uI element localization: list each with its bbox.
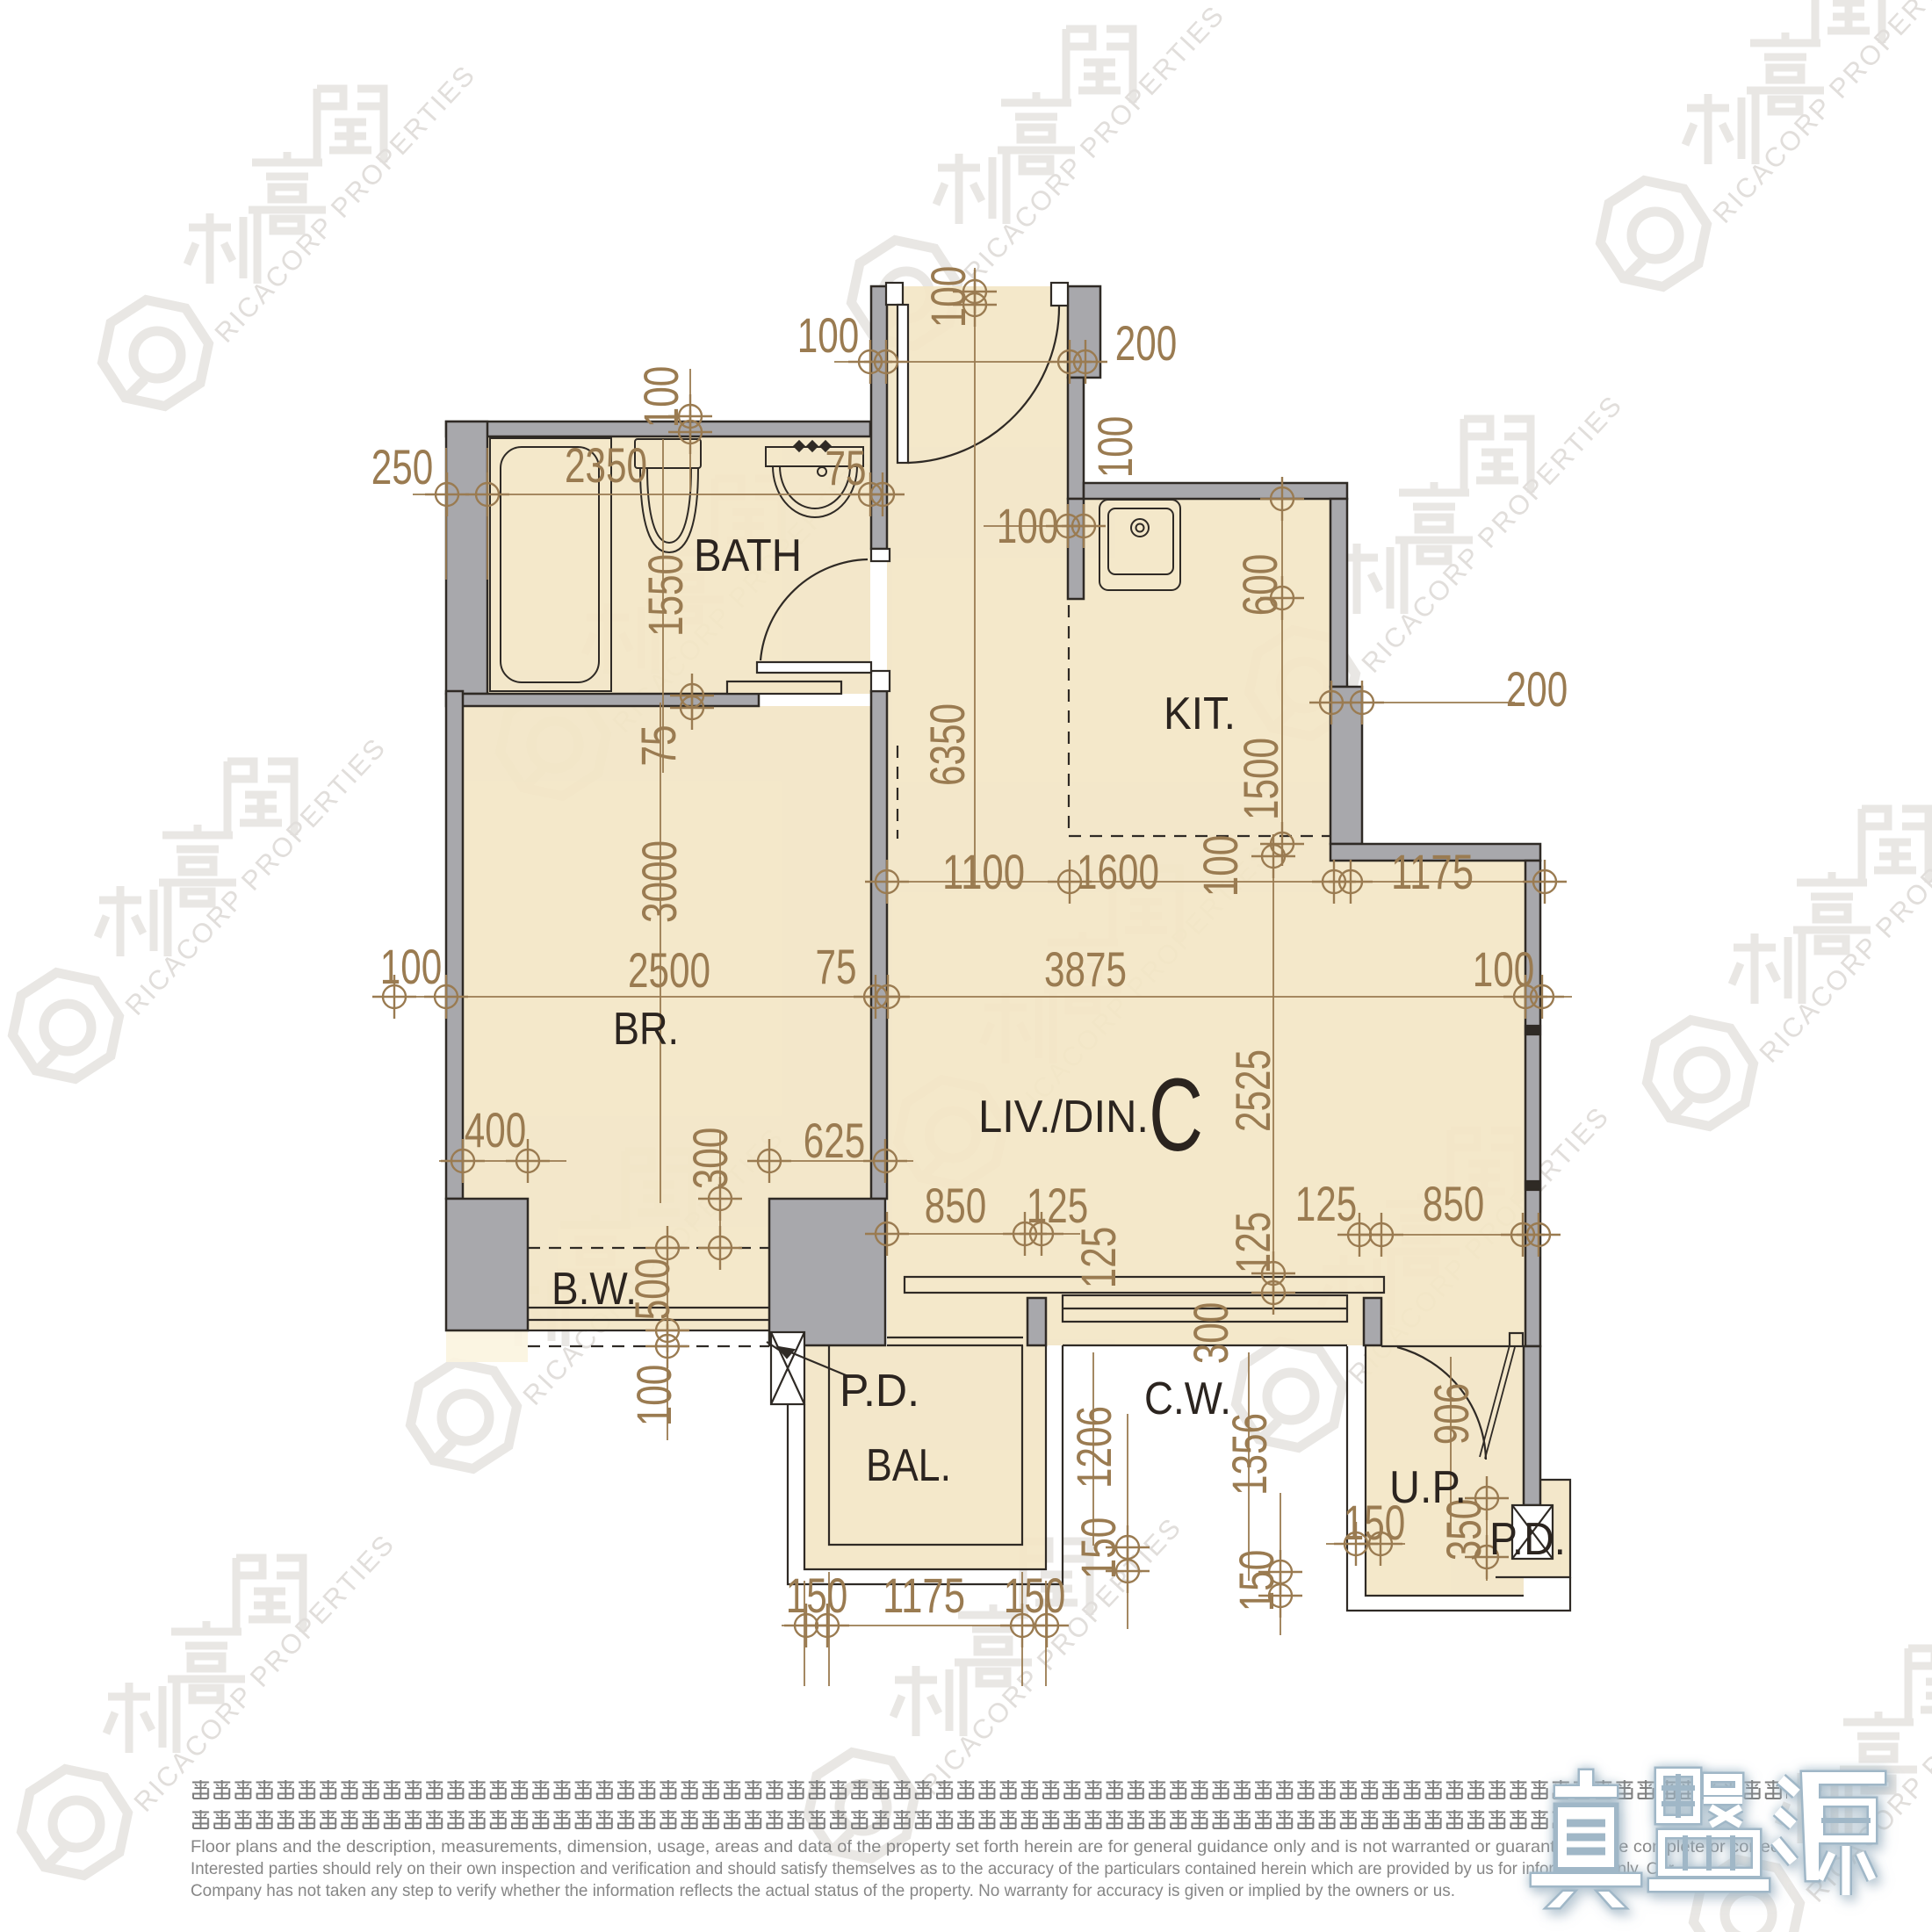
svg-text:100: 100	[633, 366, 688, 429]
svg-text:3875: 3875	[1044, 941, 1127, 997]
svg-text:2350: 2350	[565, 437, 647, 493]
svg-text:100: 100	[1193, 835, 1248, 898]
svg-text:75: 75	[816, 939, 857, 994]
svg-text:1206: 1206	[1066, 1406, 1121, 1489]
svg-text:1100: 1100	[942, 844, 1025, 899]
svg-text:625: 625	[804, 1113, 866, 1168]
svg-text:400: 400	[465, 1102, 527, 1157]
svg-text:906: 906	[1424, 1383, 1479, 1445]
svg-text:1550: 1550	[638, 554, 693, 637]
svg-text:125: 125	[1027, 1178, 1089, 1233]
svg-text:100: 100	[1473, 941, 1535, 997]
svg-text:150: 150	[1229, 1550, 1284, 1612]
svg-text:150: 150	[1004, 1568, 1066, 1623]
svg-text:Company has not taken any step: Company has not taken any step to verify…	[191, 1881, 1455, 1900]
svg-text:LIV./DIN.: LIV./DIN.	[978, 1092, 1149, 1143]
svg-text:2525: 2525	[1225, 1049, 1280, 1132]
svg-text:100: 100	[626, 1365, 681, 1427]
svg-text:300: 300	[682, 1128, 738, 1190]
svg-text:200: 200	[1506, 661, 1568, 717]
svg-text:6350: 6350	[919, 703, 975, 786]
svg-text:1600: 1600	[1077, 844, 1159, 899]
svg-text:850: 850	[1423, 1176, 1485, 1231]
svg-text:100: 100	[997, 498, 1059, 553]
svg-text:BAL.: BAL.	[866, 1440, 951, 1491]
svg-text:125: 125	[1295, 1176, 1358, 1231]
svg-text:300: 300	[1183, 1302, 1238, 1365]
svg-text:75: 75	[631, 725, 686, 767]
svg-text:1500: 1500	[1233, 738, 1288, 820]
svg-text:100: 100	[920, 266, 976, 328]
svg-text:P.D.: P.D.	[1489, 1514, 1566, 1565]
svg-text:100: 100	[1087, 416, 1143, 479]
svg-text:100: 100	[380, 939, 443, 994]
svg-text:Interested parties should rely: Interested parties should rely on their …	[191, 1859, 1674, 1878]
svg-text:BR.: BR.	[613, 1004, 679, 1055]
svg-text:150: 150	[786, 1568, 848, 1623]
svg-text:KIT.: KIT.	[1164, 688, 1236, 739]
svg-text:250: 250	[371, 439, 434, 494]
svg-text:P.D.: P.D.	[840, 1366, 919, 1417]
svg-text:B.W.: B.W.	[551, 1264, 637, 1315]
svg-text:100: 100	[797, 307, 860, 363]
svg-text:125: 125	[1225, 1212, 1280, 1274]
svg-text:C.W.: C.W.	[1144, 1373, 1231, 1424]
svg-text:150: 150	[1071, 1517, 1126, 1580]
svg-text:75: 75	[825, 440, 867, 495]
svg-text:850: 850	[925, 1178, 987, 1233]
svg-text:2500: 2500	[628, 942, 710, 998]
svg-text:3000: 3000	[631, 840, 687, 923]
svg-text:Floor plans and the descriptio: Floor plans and the description, measure…	[191, 1837, 1789, 1856]
svg-text:1356: 1356	[1222, 1413, 1277, 1496]
svg-text:1175: 1175	[1391, 844, 1474, 899]
svg-text:1175: 1175	[883, 1568, 965, 1623]
svg-text:C: C	[1149, 1057, 1203, 1173]
svg-text:600: 600	[1232, 554, 1287, 616]
svg-text:BATH: BATH	[694, 530, 802, 581]
svg-text:125: 125	[1071, 1227, 1126, 1289]
svg-text:U.P.: U.P.	[1389, 1462, 1467, 1513]
svg-text:200: 200	[1115, 315, 1178, 371]
